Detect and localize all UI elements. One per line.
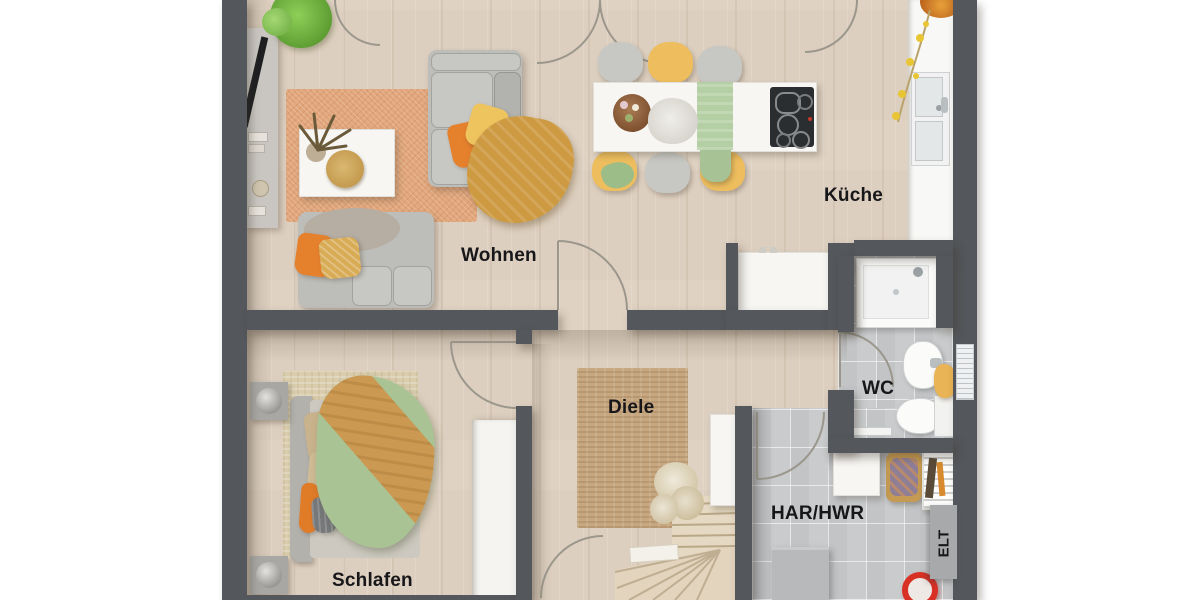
laundry-clothes	[890, 458, 918, 496]
centerpiece-bowl	[613, 94, 651, 132]
room-label-schlafen: Schlafen	[332, 570, 413, 592]
room-label-wc: WC	[862, 378, 894, 400]
hung-garment	[937, 462, 946, 496]
green-duvet	[313, 374, 437, 550]
wall-diele-har	[735, 406, 752, 600]
faucet-icon	[941, 97, 948, 113]
tv-sideboard	[245, 28, 278, 228]
drain-icon	[893, 289, 899, 295]
wall-kueche-wc	[854, 240, 953, 256]
flower-branch	[890, 10, 938, 130]
table-runner-drape	[700, 150, 731, 182]
toilet-tank	[934, 395, 954, 437]
dining-chair-gray	[598, 42, 643, 83]
schlafen-door-jamb	[516, 330, 532, 344]
books	[248, 132, 268, 142]
wall-wohnen-diele	[627, 310, 726, 330]
books	[248, 144, 265, 153]
knob	[759, 247, 766, 253]
lamp	[256, 562, 282, 588]
wardrobe	[472, 420, 518, 600]
wc-wall-upper	[838, 256, 854, 332]
radiator	[956, 344, 974, 400]
storage-box	[772, 547, 829, 600]
nightstand	[250, 382, 288, 420]
washing-box	[833, 452, 880, 496]
room-label-har-hwr: HAR/HWR	[771, 503, 864, 525]
dining-chair-gray	[645, 152, 690, 193]
knob	[770, 247, 777, 253]
table-runner	[697, 82, 733, 150]
dining-chair-yellow	[648, 42, 693, 83]
floorplan-canvas: Wohnen Küche Diele WC HAR/HWR Schlafen E…	[0, 0, 1200, 600]
cooktop	[770, 87, 814, 147]
outer-wall-left	[222, 0, 247, 600]
table-plant	[296, 108, 356, 160]
white-bouquet	[648, 98, 698, 144]
room-label-diele: Diele	[608, 397, 654, 419]
lamp	[256, 388, 282, 414]
potted-plant	[262, 0, 338, 56]
decor-bowl	[252, 180, 269, 197]
dried-plant	[650, 458, 706, 532]
mustard-pillow	[318, 236, 362, 280]
niche-wall-back	[726, 310, 828, 330]
room-label-wohnen: Wohnen	[461, 245, 537, 267]
hall-sideboard	[738, 252, 829, 312]
dining-chair-gray	[697, 46, 742, 87]
shower	[856, 258, 938, 328]
laundry-basket	[886, 452, 922, 502]
room-label-kueche: Küche	[824, 185, 883, 207]
wall-schlafen-diele	[516, 406, 532, 600]
outer-wall-bottom	[222, 595, 530, 600]
books	[248, 206, 266, 216]
shower-duct-wall	[936, 256, 953, 328]
niche-wall-left	[726, 243, 738, 310]
showerhead-icon	[913, 267, 923, 277]
hung-garment	[925, 458, 937, 499]
wall-wohnen-schlafen	[247, 310, 558, 330]
nightstand	[250, 556, 288, 594]
wall-wc-har	[828, 438, 953, 453]
room-label-elt: ELT	[936, 528, 953, 560]
